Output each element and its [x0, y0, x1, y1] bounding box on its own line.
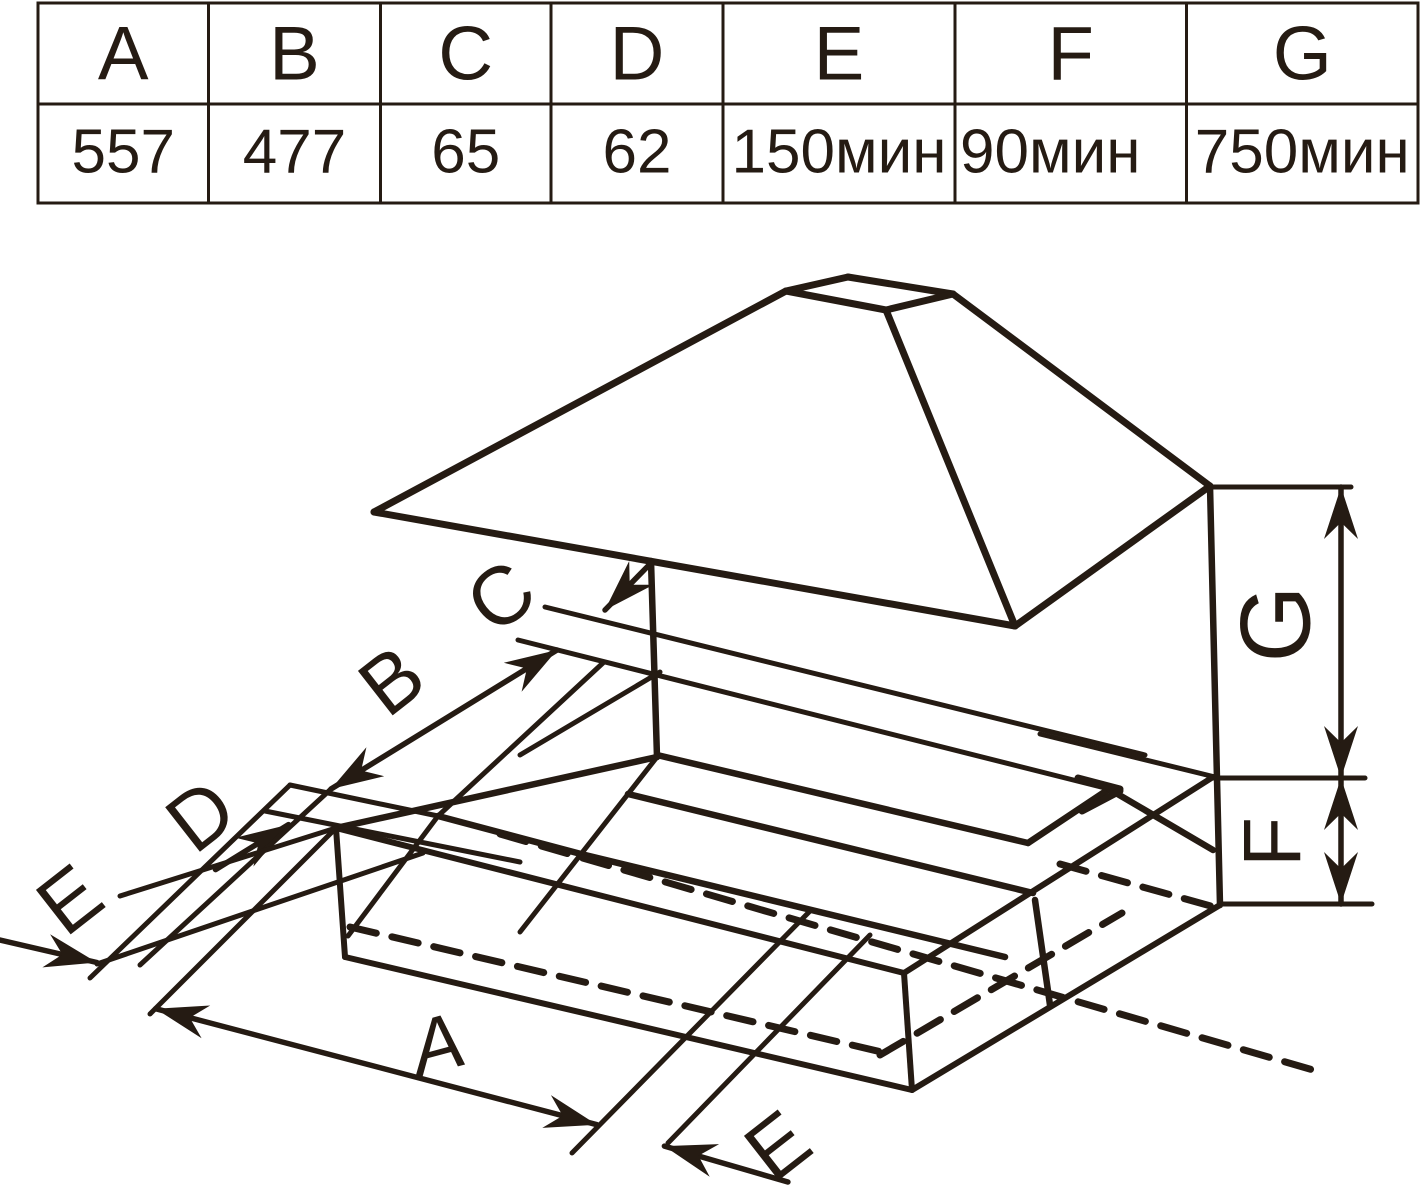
svg-text:D: D: [610, 12, 665, 97]
svg-text:477: 477: [243, 118, 346, 187]
svg-text:150мин: 150мин: [732, 118, 947, 187]
svg-text:750мин: 750мин: [1195, 118, 1410, 187]
svg-text:B: B: [269, 12, 320, 97]
svg-text:557: 557: [72, 118, 175, 187]
svg-text:65: 65: [431, 118, 500, 187]
svg-text:A: A: [98, 12, 149, 97]
svg-text:G: G: [1273, 12, 1332, 97]
svg-text:E: E: [814, 12, 865, 97]
svg-text:C: C: [438, 12, 493, 97]
svg-text:F: F: [1048, 12, 1094, 97]
svg-text:62: 62: [603, 118, 672, 187]
svg-text:G: G: [1220, 585, 1331, 662]
svg-text:90мин: 90мин: [960, 118, 1140, 187]
svg-text:F: F: [1228, 817, 1319, 867]
